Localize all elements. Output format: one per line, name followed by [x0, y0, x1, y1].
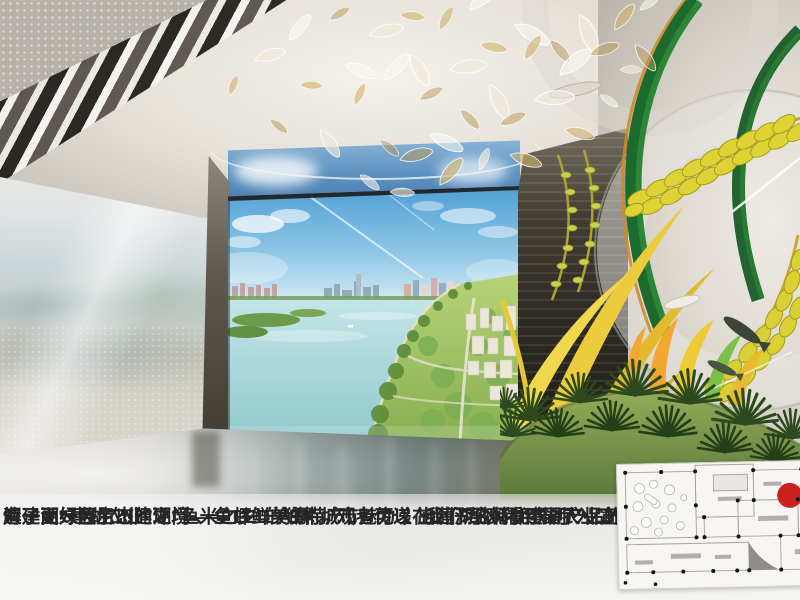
furniture-symbols [629, 480, 687, 537]
fish-ornament-icon [400, 10, 426, 21]
floor-plan-inset [616, 459, 800, 590]
location-marker [777, 483, 800, 509]
fish-ornament-icon [358, 171, 382, 192]
fish-ornament-icon [465, 0, 501, 14]
led-screen [228, 186, 520, 444]
fish-ornament-icon [377, 137, 401, 159]
fish-ornament-icon [226, 74, 240, 96]
fish-ornament-icon [328, 4, 351, 23]
fish-ornament-icon [285, 11, 314, 43]
plan-ramp [749, 542, 780, 571]
fish-ornament-icon [436, 5, 456, 32]
caption-line: 解建湖绿色生态的环境 、鱼虾鲜美的特产 ， 传递 出建湖名特优农副产品的品牌特点… [3, 503, 716, 531]
fish-ornament-icon [390, 187, 415, 197]
room-labels [633, 480, 800, 564]
proposal-page: 为了更好展示出建湖“鱼米之乡”的独特城市魅力 ， 我们巧妙利用展厅入口位置， 创… [0, 0, 800, 600]
fish-ornament-icon [508, 149, 543, 170]
fish-ornament-icon [351, 82, 368, 107]
fish-chandelier-ornament [170, 0, 670, 210]
fish-ornament-icon [369, 21, 405, 40]
fish-ornament-icon [457, 106, 483, 131]
fish-ornament-icon [598, 92, 620, 110]
fish-ornament-icon [476, 147, 492, 171]
fish-ornament-icon [449, 57, 487, 76]
fish-ornament-icon [268, 117, 290, 136]
fish-ornament-icon [564, 124, 596, 142]
led-screen-content [228, 186, 520, 444]
floor-plan-drawing [617, 460, 800, 587]
fish-ornament-icon [428, 129, 466, 156]
fish-ornament-icon [418, 84, 445, 104]
fish-ornament-icon [253, 45, 286, 65]
fish-ornament-icon [620, 66, 642, 74]
fish-ornament-icon [479, 40, 508, 54]
fish-ornament-icon [610, 1, 638, 33]
fish-ornament-icon [398, 145, 434, 166]
pillar-reflection [192, 431, 220, 487]
fish-ornament-icon [534, 89, 575, 106]
fish-ornament-icon [343, 59, 378, 82]
side-screen-reflection [0, 168, 212, 470]
fish-ornament-icon [316, 126, 344, 159]
fish-ornament-icon [300, 81, 322, 89]
fish-ornament-icon [380, 50, 413, 84]
fish-ornament-icon [638, 0, 661, 13]
fish-ornament-icon [435, 154, 466, 188]
